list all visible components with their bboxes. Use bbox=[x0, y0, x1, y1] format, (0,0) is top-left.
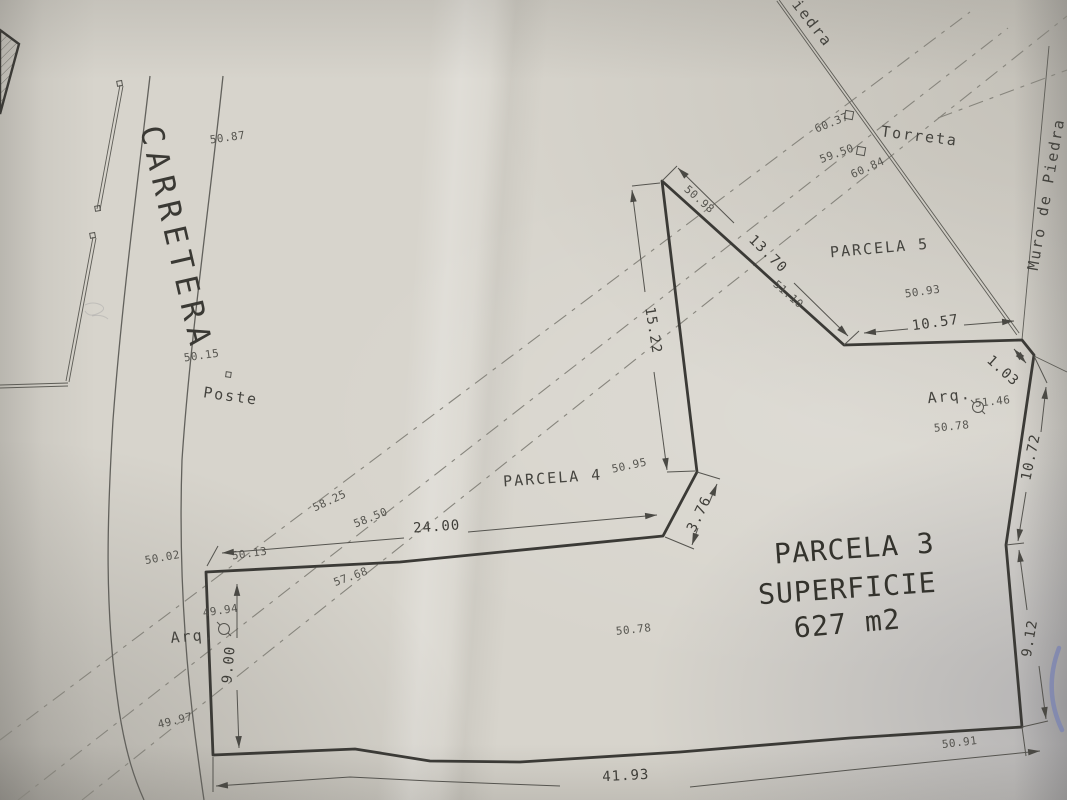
torreta-label: Torreta bbox=[880, 122, 959, 149]
dim-10-57: 10.57 bbox=[911, 312, 960, 334]
elev-50-91: 50.91 bbox=[941, 734, 978, 751]
dim-13-70: 13.70 bbox=[745, 232, 790, 276]
road-label: CARRETERA bbox=[132, 122, 219, 355]
elev-50-93: 50.93 bbox=[904, 283, 941, 301]
elev-50-78-right: 50.78 bbox=[933, 418, 970, 435]
arq-right-label: Arq. bbox=[927, 385, 973, 408]
elev-50-95: 50.95 bbox=[610, 456, 648, 476]
building-corner bbox=[0, 30, 19, 114]
labels: CARRETERA PARCELA 3 SUPERFICIE 627 m2 PA… bbox=[132, 0, 1067, 785]
parcel5-name: PARCELA 5 bbox=[829, 235, 929, 262]
road-edge-right bbox=[181, 76, 223, 800]
elev-60-84: 60.84 bbox=[849, 155, 887, 181]
dimension-lines bbox=[207, 166, 1048, 792]
wall-marker-square bbox=[856, 146, 865, 155]
poste-marker bbox=[226, 372, 232, 378]
elev-58-50: 58.50 bbox=[352, 505, 390, 530]
elev-50-98: 50.98 bbox=[682, 183, 717, 216]
road-edge-left bbox=[108, 76, 150, 800]
parcel3-area: 627 m2 bbox=[792, 602, 902, 644]
elev-59-50: 59.50 bbox=[818, 142, 856, 166]
dim-1-03: 1.03 bbox=[983, 352, 1022, 389]
elev-50-78-center: 50.78 bbox=[615, 621, 652, 638]
elev-50-13: 50.13 bbox=[231, 545, 268, 563]
piedra-partial-label: Piedra bbox=[781, 0, 836, 51]
stone-wall-torreta bbox=[777, 0, 1019, 335]
dim-9-12: 9.12 bbox=[1019, 618, 1041, 658]
parcel3-surface-label: SUPERFICIE bbox=[757, 566, 937, 611]
site-plan-photo: CARRETERA PARCELA 3 SUPERFICIE 627 m2 PA… bbox=[0, 0, 1067, 800]
dim-24-00: 24.00 bbox=[413, 517, 461, 536]
fence-line bbox=[0, 81, 123, 388]
poste-label: Poste bbox=[202, 383, 259, 409]
arq-left-label: Arq. bbox=[170, 625, 216, 647]
elev-60-37: 60.37 bbox=[813, 110, 851, 135]
elev-49-97: 49.97 bbox=[156, 710, 194, 731]
faint-smudge bbox=[85, 303, 108, 319]
elev-51-10: 51.10 bbox=[771, 278, 806, 311]
elev-51-46: 51.46 bbox=[974, 393, 1011, 410]
elev-50-02: 50.02 bbox=[144, 548, 181, 567]
dim-15-22: 15.22 bbox=[641, 306, 664, 355]
site-plan-drawing: CARRETERA PARCELA 3 SUPERFICIE 627 m2 PA… bbox=[0, 0, 1067, 800]
arqueta-symbol-left bbox=[217, 622, 231, 636]
dim-9-00: 9.00 bbox=[219, 645, 238, 684]
dim-3-76: 3.76 bbox=[684, 494, 715, 535]
elev-58-25: 58.25 bbox=[311, 487, 349, 514]
elev-50-87: 50.87 bbox=[209, 129, 246, 147]
muro-de-piedra-label: Muro de Piedra bbox=[1024, 117, 1067, 272]
elev-57-68: 57.68 bbox=[332, 565, 370, 589]
parcel3-name: PARCELA 3 bbox=[773, 526, 936, 570]
parcel4-name: PARCELA 4 bbox=[503, 466, 603, 491]
dim-41-93: 41.93 bbox=[602, 767, 650, 785]
blue-pen-arc bbox=[1052, 648, 1062, 730]
